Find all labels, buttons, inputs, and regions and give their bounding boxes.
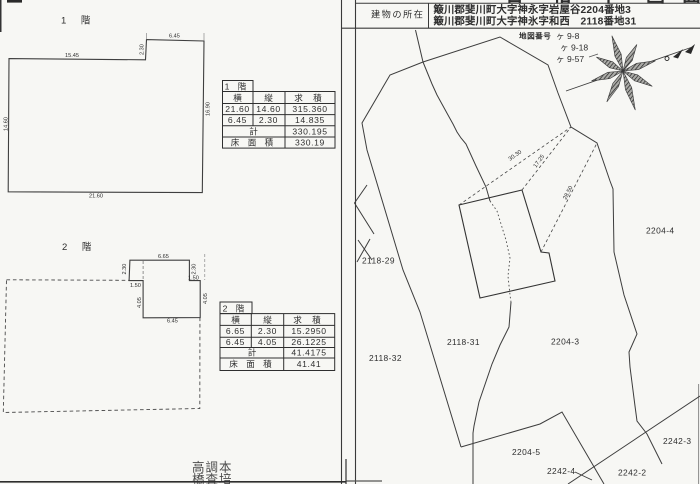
svg-text:6.45: 6.45 xyxy=(169,34,180,40)
svg-text:14.60: 14.60 xyxy=(4,117,10,131)
svg-text:26.1225: 26.1225 xyxy=(291,337,326,347)
svg-text:縦: 縦 xyxy=(264,92,273,103)
svg-text:2.30: 2.30 xyxy=(122,264,128,275)
svg-text:4.05: 4.05 xyxy=(137,297,143,308)
svg-text:縦: 縦 xyxy=(263,314,272,325)
svg-text:16.90: 16.90 xyxy=(206,102,212,116)
svg-text:1 階: 1 階 xyxy=(225,81,250,91)
svg-text:330.19: 330.19 xyxy=(295,138,325,148)
svg-text:1.50: 1.50 xyxy=(188,276,199,282)
svg-text:2118-31: 2118-31 xyxy=(447,337,480,347)
svg-text:2.30: 2.30 xyxy=(140,44,146,55)
svg-text:2 階: 2 階 xyxy=(223,303,248,313)
svg-text:2204-3: 2204-3 xyxy=(551,337,579,347)
svg-text:床 面 積: 床 面 積 xyxy=(231,137,277,148)
svg-text:6.45: 6.45 xyxy=(167,319,178,325)
svg-text:求 積: 求 積 xyxy=(293,314,325,325)
svg-text:6.45: 6.45 xyxy=(226,337,245,347)
svg-text:求 積: 求 積 xyxy=(294,92,326,103)
svg-text:簸川郡斐川町大字神氷字和西 2118番地31: 簸川郡斐川町大字神氷字和西 2118番地31 xyxy=(433,15,637,28)
svg-text:6.65: 6.65 xyxy=(226,326,245,336)
svg-text:2204-5: 2204-5 xyxy=(512,447,540,457)
svg-text:41.41: 41.41 xyxy=(297,359,322,369)
svg-text:330.195: 330.195 xyxy=(292,126,327,136)
svg-text:地図番号: 地図番号 xyxy=(519,31,551,41)
svg-text:1 階: 1 階 xyxy=(61,16,96,27)
svg-text:2242-4: 2242-4 xyxy=(547,466,575,476)
svg-text:1.50: 1.50 xyxy=(130,283,141,289)
svg-text:建物の所在: 建物の所在 xyxy=(371,9,424,20)
svg-text:簸川郡斐川町大字神永字岩屋谷2204番地3: 簸川郡斐川町大字神永字岩屋谷2204番地3 xyxy=(433,3,632,16)
svg-text:2.30: 2.30 xyxy=(259,115,278,125)
svg-text:ヶ 9-8: ヶ 9-8 xyxy=(556,31,580,41)
svg-text:2.30: 2.30 xyxy=(258,326,277,336)
svg-text:315.360: 315.360 xyxy=(292,104,327,114)
svg-text:4.05: 4.05 xyxy=(203,293,209,304)
svg-text:41.4175: 41.4175 xyxy=(291,347,326,357)
svg-text:14.835: 14.835 xyxy=(295,115,325,125)
svg-text:ヶ 9-18: ヶ 9-18 xyxy=(560,43,588,53)
svg-text:6.65: 6.65 xyxy=(158,254,169,260)
svg-text:21.60: 21.60 xyxy=(89,194,103,200)
svg-text:2.30: 2.30 xyxy=(192,264,198,275)
svg-text:計: 計 xyxy=(248,346,257,357)
svg-text:横: 横 xyxy=(231,314,240,325)
svg-text:2242-2: 2242-2 xyxy=(618,468,646,478)
svg-text:14.60: 14.60 xyxy=(256,104,281,114)
svg-text:2 階: 2 階 xyxy=(62,242,97,253)
svg-text:2242-3: 2242-3 xyxy=(663,436,691,446)
svg-text:橋査培: 橋査培 xyxy=(192,472,233,484)
svg-text:15.45: 15.45 xyxy=(65,53,79,59)
svg-text:21.60: 21.60 xyxy=(225,104,250,114)
svg-text:ヶ 9-57: ヶ 9-57 xyxy=(556,54,584,64)
svg-text:2118-32: 2118-32 xyxy=(369,353,402,363)
svg-text:15.2950: 15.2950 xyxy=(291,326,326,336)
svg-text:計: 計 xyxy=(249,125,258,136)
svg-text:床 面 積: 床 面 積 xyxy=(229,358,275,369)
svg-text:6.45: 6.45 xyxy=(228,115,247,125)
svg-text:2118-29: 2118-29 xyxy=(362,256,395,266)
svg-text:4.05: 4.05 xyxy=(258,337,277,347)
svg-text:2204-4: 2204-4 xyxy=(646,226,674,236)
svg-text:横: 横 xyxy=(233,92,242,103)
